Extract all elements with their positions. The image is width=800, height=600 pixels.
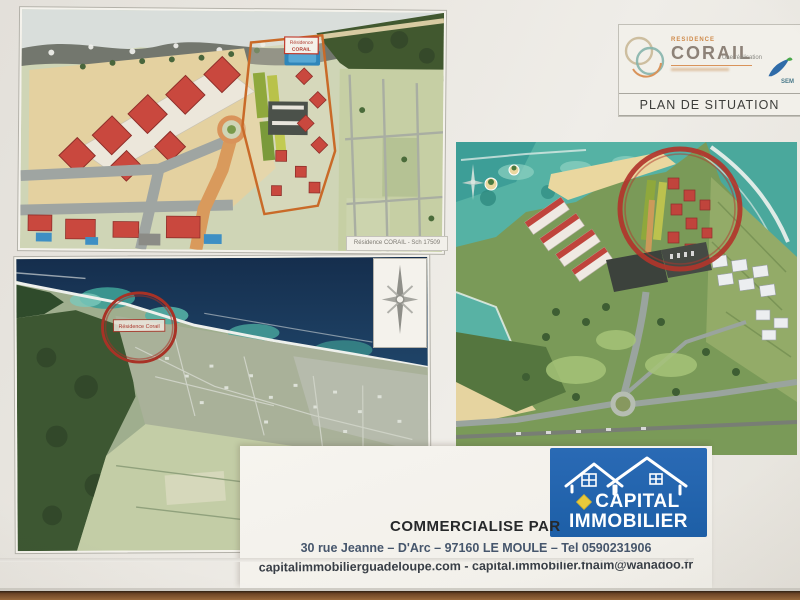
circle-label: Résidence Corail <box>118 324 159 330</box>
house-outline-icon <box>550 452 707 496</box>
site-plan-map: Résidence CORAIL <box>17 6 447 255</box>
fnaim-diamond-icon <box>576 494 592 510</box>
realisation-block: Une réalisation SEM <box>716 55 794 85</box>
parcel-label-line2: CORAIL <box>292 47 311 53</box>
site-plan-caption: Résidence CORAIL - Sch 17509 <box>346 236 448 251</box>
capital-line2: IMMOBILIER <box>550 512 707 532</box>
capital-immobilier-logo: CAPITAL IMMOBILIER <box>550 448 707 537</box>
farm-fields <box>338 69 443 252</box>
photographed-plan-page: Résidence CORAIL Résidence CORAIL - Sch … <box>0 0 800 600</box>
header-logo-block: RESIDENCE CORAIL Une réalisation SEM PLA… <box>618 24 800 117</box>
roundabout <box>613 394 633 414</box>
commercialise-heading: COMMERCIALISE PAR <box>390 518 561 535</box>
compass-box <box>373 258 427 348</box>
capital-line1: CAPITAL <box>595 491 679 512</box>
resort-aerial-map <box>456 142 797 455</box>
resort-map-illustration <box>456 142 797 455</box>
capital-wordmark: CAPITAL IMMOBILIER <box>550 492 707 532</box>
sem-bird-icon <box>764 55 794 81</box>
plan-title: PLAN DE SITUATION <box>619 93 800 116</box>
paper-crease <box>0 558 694 562</box>
realisation-label: Une réalisation <box>722 55 762 61</box>
site-plan-illustration: Résidence CORAIL <box>20 9 444 252</box>
realisation-company: SEM <box>716 79 794 85</box>
logo-row: RESIDENCE CORAIL Une réalisation SEM <box>619 25 800 93</box>
table-surface <box>0 591 800 600</box>
parcel-label-line1: Résidence <box>290 40 314 46</box>
compass-rose-icon <box>374 259 426 346</box>
corail-rings-icon <box>623 33 671 81</box>
agency-sheet: CAPITAL IMMOBILIER COMMERCIALISE PAR 30 … <box>240 446 712 588</box>
agency-address: 30 rue Jeanne – D'Arc – 97160 LE MOULE –… <box>240 541 712 555</box>
